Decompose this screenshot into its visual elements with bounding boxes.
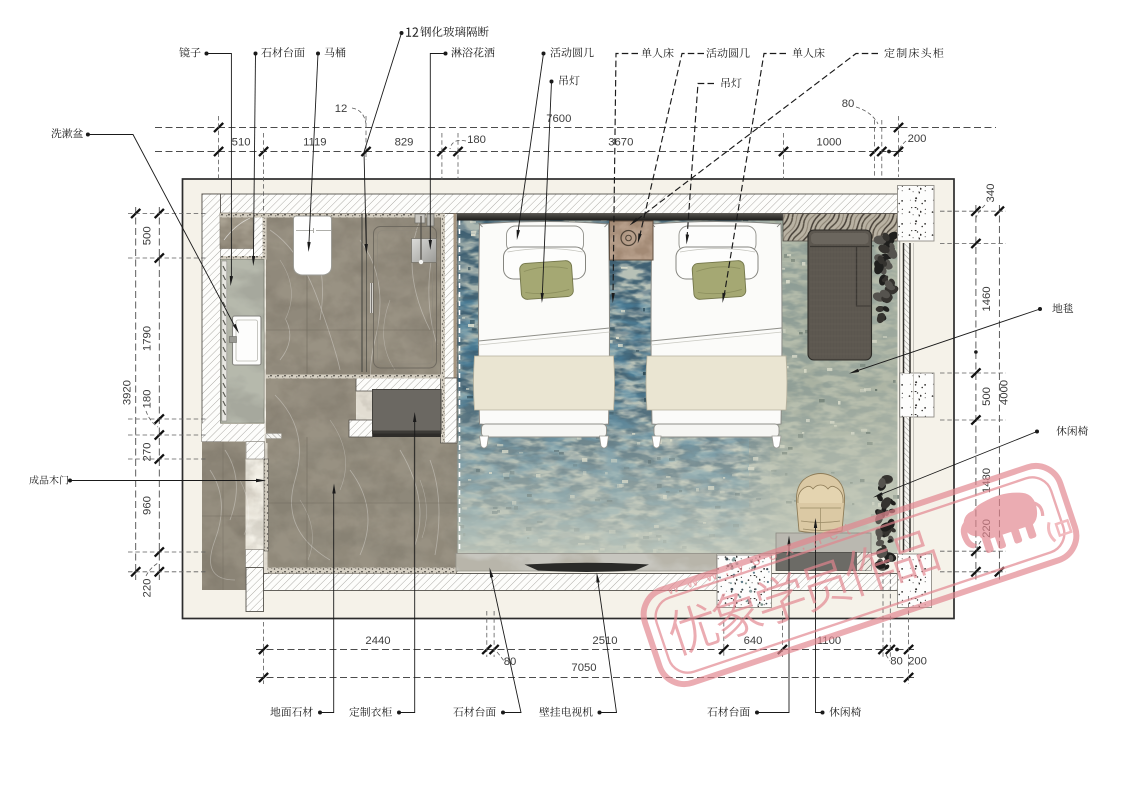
svg-text:960: 960	[142, 496, 154, 515]
svg-text:4000: 4000	[999, 380, 1011, 405]
svg-text:200: 200	[908, 656, 927, 668]
svg-text:180: 180	[142, 390, 154, 409]
svg-text:510: 510	[232, 137, 251, 149]
svg-text:2440: 2440	[365, 635, 390, 647]
svg-text:3920: 3920	[122, 380, 134, 405]
svg-text:180: 180	[467, 134, 486, 146]
svg-text:829: 829	[395, 137, 414, 149]
svg-text:1790: 1790	[142, 326, 154, 351]
svg-text:1000: 1000	[816, 137, 841, 149]
svg-text:80: 80	[842, 98, 855, 110]
svg-text:3670: 3670	[608, 137, 633, 149]
svg-text:340: 340	[985, 184, 997, 203]
svg-text:1460: 1460	[981, 286, 993, 311]
svg-text:7050: 7050	[571, 662, 596, 674]
svg-text:200: 200	[908, 133, 927, 145]
svg-text:2510: 2510	[592, 635, 617, 647]
svg-text:500: 500	[142, 226, 154, 245]
svg-text:12: 12	[335, 103, 348, 115]
svg-text:270: 270	[142, 443, 154, 462]
svg-text:1119: 1119	[303, 137, 326, 149]
svg-text:80: 80	[890, 656, 903, 668]
svg-text:220: 220	[142, 579, 154, 598]
svg-text:640: 640	[744, 635, 763, 647]
svg-text:500: 500	[981, 387, 993, 406]
